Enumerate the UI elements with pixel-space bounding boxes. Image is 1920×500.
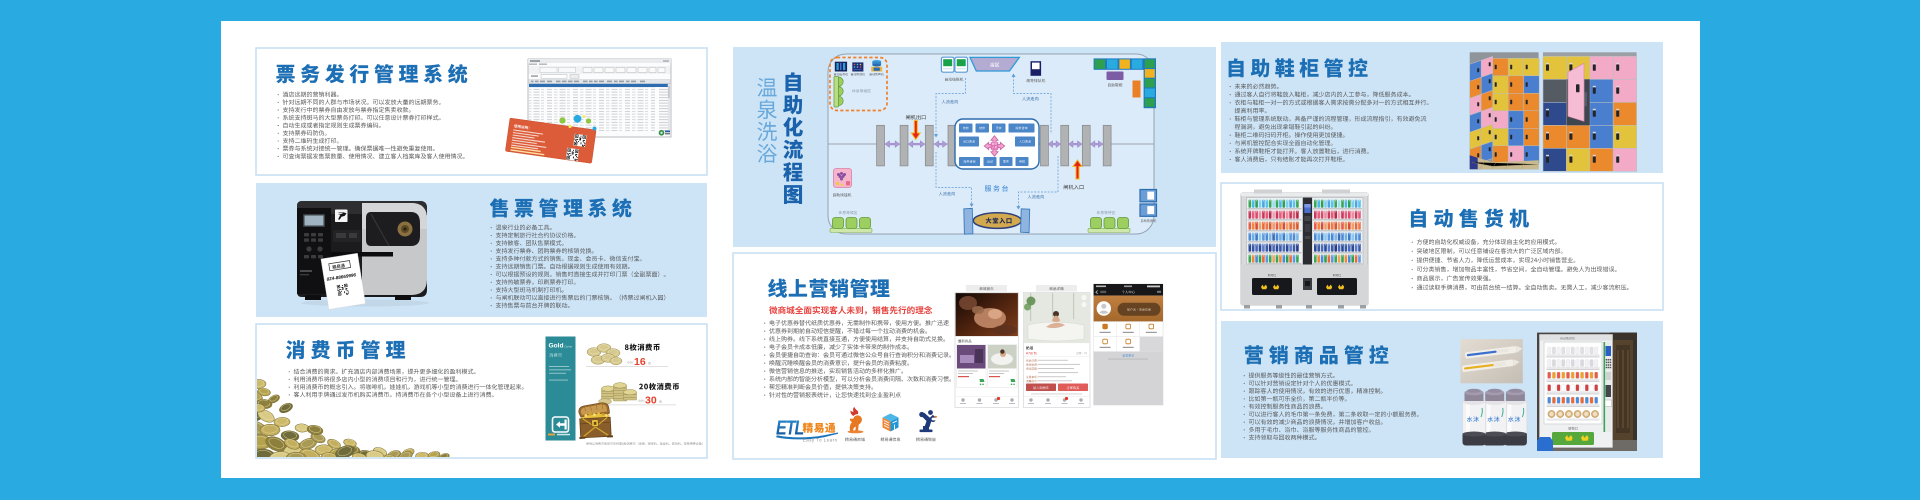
svg-text:Gold Coins: Gold Coins: [549, 343, 573, 350]
svg-text:30: 30: [645, 394, 657, 406]
svg-text:¥78/: ¥78/: [1026, 352, 1033, 356]
svg-text:ETL: ETL: [776, 417, 803, 439]
svg-text:Easy To Learn: Easy To Learn: [803, 437, 838, 442]
svg-text:16: 16: [634, 356, 646, 368]
